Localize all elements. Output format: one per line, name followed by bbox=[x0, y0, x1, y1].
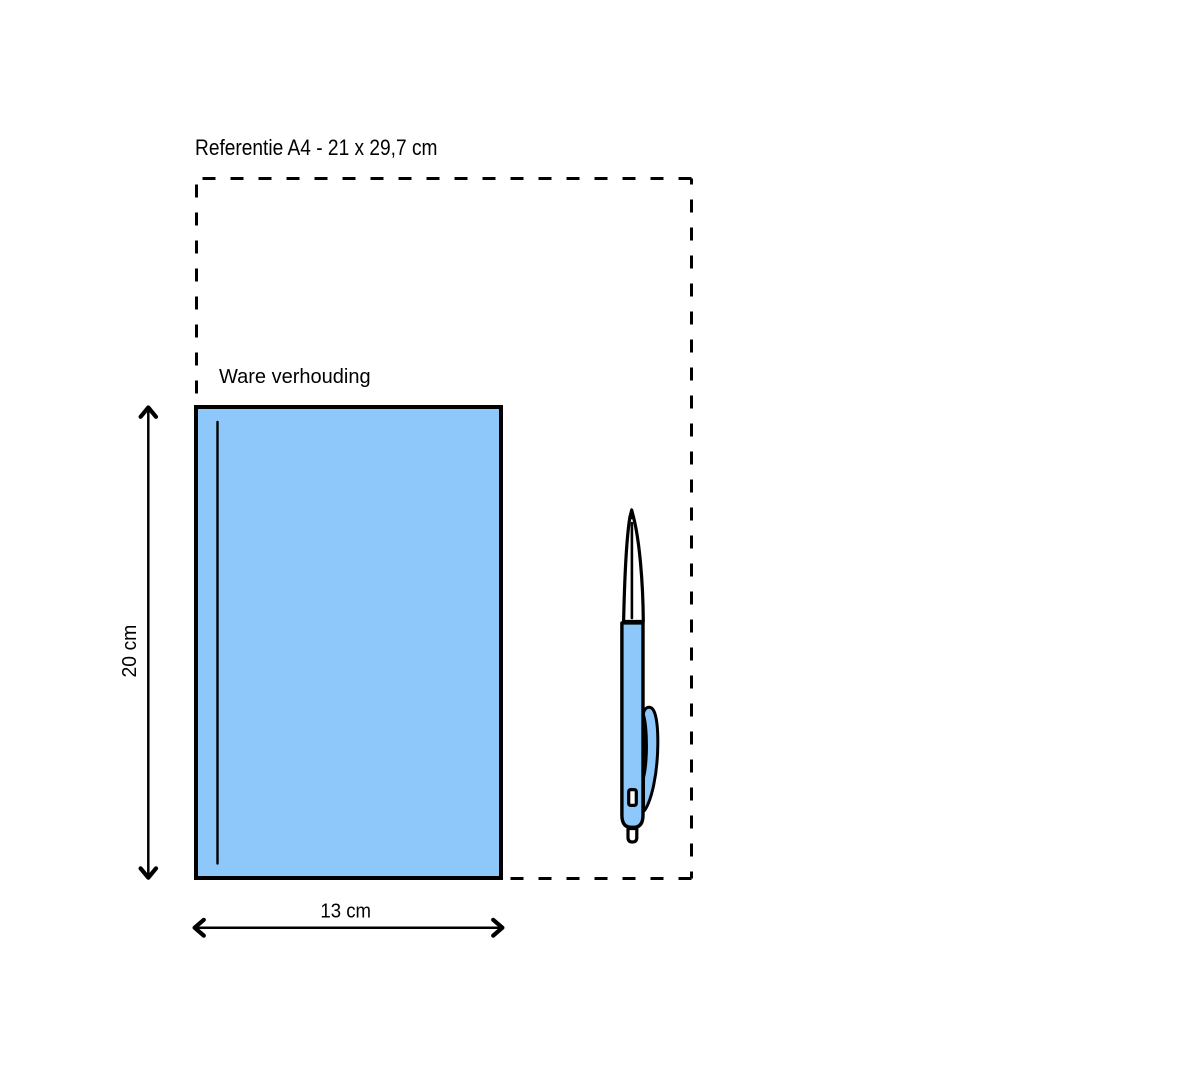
svg-text:Referentie A4 - 21 x 29,7 cm: Referentie A4 - 21 x 29,7 cm bbox=[195, 136, 437, 161]
svg-text:13 cm: 13 cm bbox=[320, 901, 371, 923]
svg-text:20 cm: 20 cm bbox=[119, 625, 141, 678]
svg-text:Ware verhouding: Ware verhouding bbox=[219, 366, 371, 388]
